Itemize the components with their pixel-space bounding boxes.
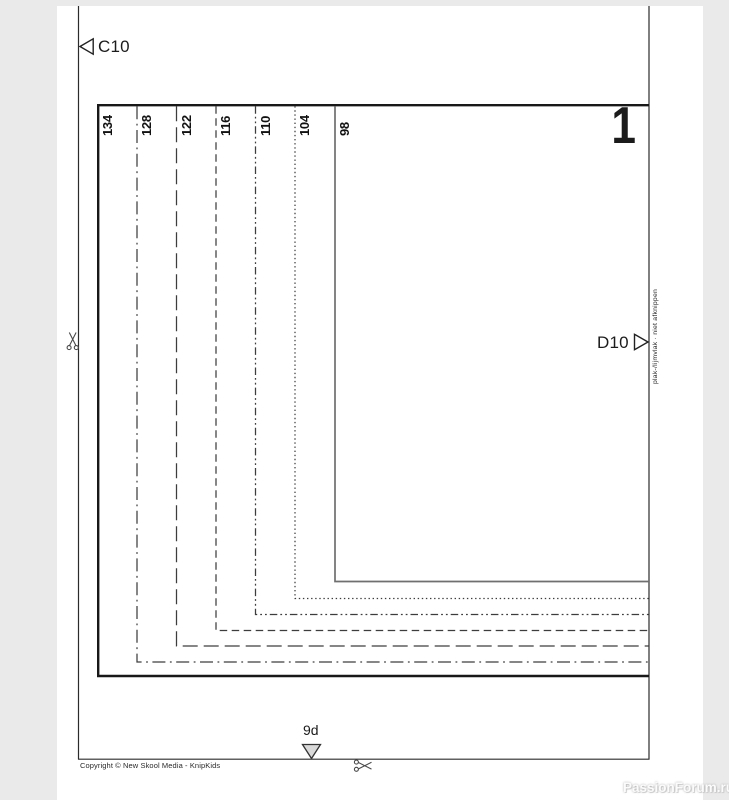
size-label-98: 98 [338,122,351,136]
size-label-122: 122 [180,115,193,136]
size-label-116: 116 [219,116,232,136]
d10-triangle-icon [635,334,649,349]
size-line-110 [256,106,650,614]
c10-marker-label: C10 [98,37,130,57]
watermark-text: PassionForum.ru [623,780,729,795]
size-line-104 [295,106,649,598]
notch-9d-triangle-icon [303,745,321,759]
size-line-128 [137,106,649,662]
pattern-sheet-page: C10 D10 1 plak-/lijmvlak · niet afknippe… [0,0,729,800]
scissors-icon [354,760,371,771]
copyright-text: Copyright © New Skool Media - KnipKids [80,761,220,770]
pattern-frame-size-134 [98,105,649,676]
size-line-122 [177,106,650,646]
size-label-134: 134 [101,115,114,136]
size-line-116 [216,106,649,630]
piece-number: 1 [594,100,637,152]
notch-9d-label: 9d [303,722,319,738]
size-label-104: 104 [298,115,311,136]
d10-marker-label: D10 [597,333,629,353]
size-label-110: 110 [259,116,272,136]
size-lines-group [137,106,649,662]
c10-triangle-icon [80,39,93,54]
size-label-128: 128 [140,115,153,136]
edge-note-vertical-text: plak-/lijmvlak · niet afknippen [652,289,659,384]
scissors-icon [67,333,78,350]
